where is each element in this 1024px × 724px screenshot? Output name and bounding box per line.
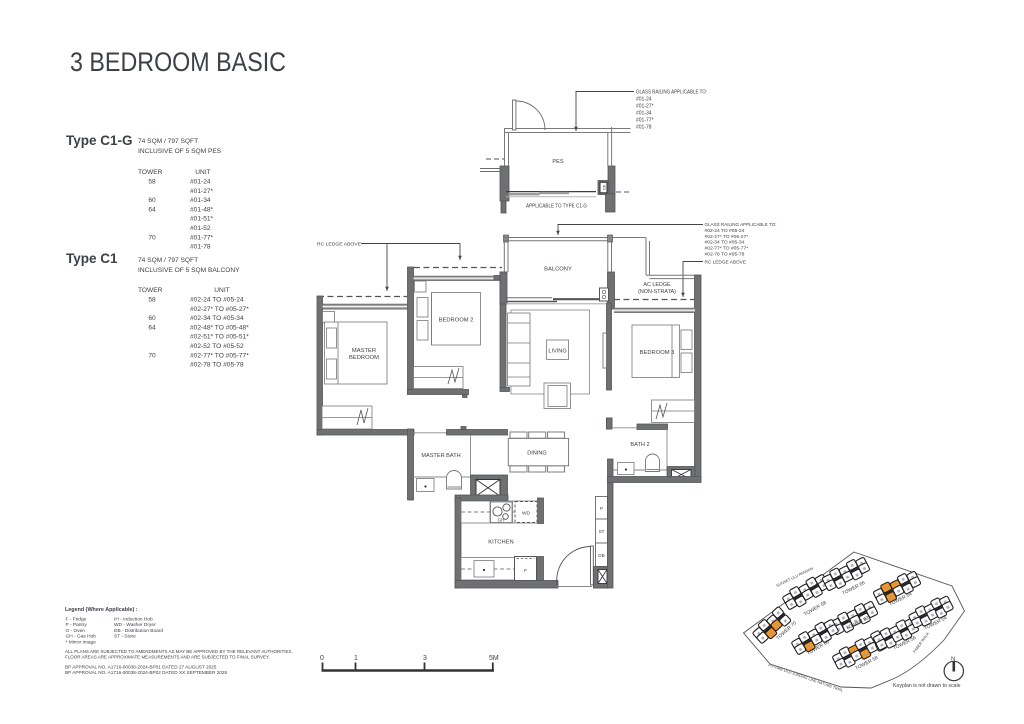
svg-text:INCLUSIVE OF 5 SQM PES: INCLUSIVE OF 5 SQM PES (138, 148, 222, 155)
svg-text:TOWER: TOWER (138, 169, 163, 176)
svg-text:74 SQM / 797 SQFT: 74 SQM / 797 SQFT (138, 138, 198, 145)
svg-text:3 BEDROOM BASIC: 3 BEDROOM BASIC (70, 47, 286, 77)
svg-text:Keyplan is not drawn to scale: Keyplan is not drawn to scale (893, 683, 961, 689)
svg-text:RC LEDGE ABOVE: RC LEDGE ABOVE (317, 241, 362, 247)
svg-text:GH: GH (498, 518, 505, 523)
svg-text:ST: ST (599, 529, 605, 534)
svg-text:#01-24: #01-24 (190, 179, 211, 186)
svg-text:GH - Gas Hob: GH - Gas Hob (66, 634, 97, 640)
svg-text:#02-77* TO #05-77*: #02-77* TO #05-77* (190, 352, 249, 359)
svg-text:#01-34: #01-34 (636, 111, 652, 117)
svg-text:Legend (Where Applicable) :: Legend (Where Applicable) : (65, 607, 138, 613)
svg-text:Type C1-G: Type C1-G (66, 133, 133, 148)
svg-text:#01-77*: #01-77* (636, 118, 654, 124)
svg-text:3: 3 (423, 655, 427, 662)
svg-text:BP APPROVAL NO. A1716-00038-20: BP APPROVAL NO. A1716-00038-2024-BP01 DA… (65, 665, 217, 670)
svg-text:MASTER: MASTER (352, 348, 376, 354)
svg-text:MASTER BATH: MASTER BATH (421, 453, 460, 459)
svg-text:BEDROOM 2: BEDROOM 2 (439, 318, 474, 324)
svg-text:#01-78: #01-78 (190, 244, 211, 251)
svg-text:KITCHEN: KITCHEN (488, 540, 513, 546)
svg-text:ST - Store: ST - Store (114, 634, 136, 640)
svg-text:TOWER 68: TOWER 68 (803, 600, 828, 618)
svg-text:P: P (600, 506, 603, 511)
svg-text:O - Oven: O - Oven (66, 628, 86, 634)
svg-text:P - Pantry: P - Pantry (66, 622, 88, 628)
svg-text:RC LEDGE ABOVE: RC LEDGE ABOVE (705, 260, 747, 266)
svg-text:AC LEDGE: AC LEDGE (643, 282, 671, 288)
svg-text:#02-27* TO #05-27*: #02-27* TO #05-27* (190, 306, 249, 313)
svg-text:#02-52 TO #05-52: #02-52 TO #05-52 (190, 343, 244, 350)
svg-text:PES: PES (552, 159, 563, 165)
svg-text:60: 60 (148, 197, 156, 204)
svg-text:IH - Induction Hob: IH - Induction Hob (114, 617, 153, 623)
svg-text:#02-24 TO #05-24: #02-24 TO #05-24 (705, 228, 745, 234)
svg-text:64: 64 (148, 206, 156, 213)
svg-text:#02-27* TO #05-27*: #02-27* TO #05-27* (705, 234, 749, 240)
svg-text:#01-27*: #01-27* (636, 104, 654, 110)
svg-text:BALCONY: BALCONY (544, 267, 572, 273)
svg-text:FUTURE OLD JURONG LINE NATURE: FUTURE OLD JURONG LINE NATURE TRAIL (768, 663, 844, 692)
svg-text:#02-24 TO #05-24: #02-24 TO #05-24 (190, 297, 244, 304)
svg-text:TOWER: TOWER (138, 287, 163, 294)
svg-text:WD - Washer Dryer: WD - Washer Dryer (114, 622, 156, 628)
svg-text:#02-78 TO #05-78: #02-78 TO #05-78 (705, 252, 745, 258)
svg-text:#02-34 TO #05-34: #02-34 TO #05-34 (705, 240, 745, 246)
svg-text:WD: WD (522, 511, 531, 517)
svg-text:BP APPROVAL NO. A1716-00038-20: BP APPROVAL NO. A1716-00038-2024-BP02 DA… (65, 670, 228, 675)
svg-text:#01-51*: #01-51* (190, 216, 214, 223)
svg-text:FLOOR AREAS ARE APPROXIMATE ME: FLOOR AREAS ARE APPROXIMATE MEASUREMENTS… (65, 655, 270, 660)
svg-text:N: N (951, 657, 955, 663)
svg-text:#02-78 TO #05-78: #02-78 TO #05-78 (190, 362, 244, 369)
svg-text:DINING: DINING (527, 451, 547, 457)
svg-text:#01-48*: #01-48* (190, 206, 214, 213)
svg-text:1: 1 (354, 655, 358, 662)
svg-text:#02-34 TO #05-34: #02-34 TO #05-34 (190, 315, 244, 322)
svg-text:70: 70 (148, 234, 156, 241)
svg-text:#01-52: #01-52 (190, 225, 211, 232)
svg-text:#01-34: #01-34 (190, 197, 211, 204)
svg-text:#01-24: #01-24 (636, 97, 652, 103)
svg-text:FABER WALK: FABER WALK (913, 631, 931, 653)
svg-text:#02-51* TO #05-51*: #02-51* TO #05-51* (190, 334, 249, 341)
svg-text:GLASS RAILING APPLICABLE TO:: GLASS RAILING APPLICABLE TO: (705, 222, 777, 228)
svg-text:DB: DB (603, 184, 607, 189)
svg-text:DB: DB (598, 553, 604, 558)
svg-text:64: 64 (148, 324, 156, 331)
svg-text:F: F (524, 568, 527, 574)
svg-text:BATH 2: BATH 2 (630, 442, 649, 448)
svg-text:UNIT: UNIT (214, 287, 229, 294)
svg-text:DB - Distribution Board: DB - Distribution Board (114, 628, 163, 634)
svg-text:#01-78: #01-78 (636, 125, 652, 131)
svg-text:GLASS RAILING APPLICABLE TO:: GLASS RAILING APPLICABLE TO: (636, 90, 707, 96)
svg-text:#02-77* TO #05-77*: #02-77* TO #05-77* (705, 246, 749, 252)
svg-text:* Mirror Image: * Mirror Image (66, 639, 97, 645)
svg-text:5M: 5M (489, 655, 499, 662)
svg-text:60: 60 (148, 315, 156, 322)
svg-text:BEDROOM: BEDROOM (349, 355, 379, 361)
svg-text:ALL PLANS ARE SUBJECTED TO AME: ALL PLANS ARE SUBJECTED TO AMENDMENTS AS… (65, 649, 293, 654)
svg-text:#01-77*: #01-77* (190, 234, 214, 241)
svg-text:58: 58 (148, 297, 156, 304)
svg-text:58: 58 (148, 179, 156, 186)
svg-text:Type C1: Type C1 (66, 251, 118, 266)
svg-text:UNIT: UNIT (195, 169, 210, 176)
svg-text:(NON-STRATA): (NON-STRATA) (638, 289, 676, 295)
svg-text:INCLUSIVE OF 5 SQM BALCONY: INCLUSIVE OF 5 SQM BALCONY (138, 267, 240, 274)
svg-text:APPLICABLE TO TYPE C1-G: APPLICABLE TO TYPE C1-G (526, 204, 587, 210)
svg-text:#02-48* TO #05-48*: #02-48* TO #05-48* (190, 324, 249, 331)
svg-text:70: 70 (148, 352, 156, 359)
svg-text:LIVING: LIVING (548, 349, 566, 355)
svg-text:#01-27*: #01-27* (190, 188, 214, 195)
svg-text:0: 0 (320, 655, 324, 662)
svg-text:74 SQM / 797 SQFT: 74 SQM / 797 SQFT (138, 257, 198, 264)
svg-text:BEDROOM 3: BEDROOM 3 (640, 350, 675, 356)
svg-text:F - Fridge: F - Fridge (66, 617, 87, 623)
